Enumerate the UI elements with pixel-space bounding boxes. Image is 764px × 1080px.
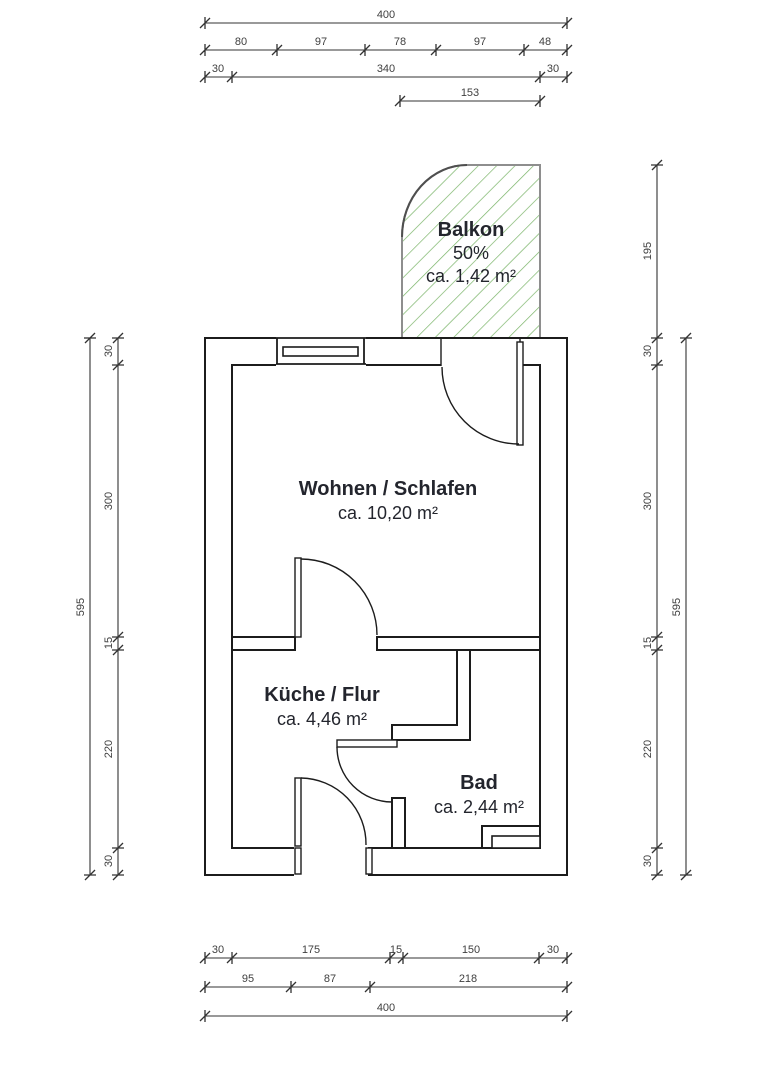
balkon-area: ca. 1,42 m² [426, 266, 516, 286]
dim-label: 97 [474, 36, 486, 48]
dim-label: 15 [390, 944, 402, 956]
dim-label: 340 [377, 63, 395, 75]
dim-label: 30 [212, 944, 224, 956]
floor-plan-drawing: 400 80 97 78 97 48 30 340 30 153 30 175 … [0, 0, 764, 1080]
dim-label: 30 [642, 855, 654, 867]
entrance-door-leaf [295, 778, 301, 846]
entrance-door-jamb-left [295, 848, 301, 874]
dim-label: 30 [103, 855, 115, 867]
dimensions-bottom: 30 175 15 150 30 95 87 218 400 [200, 944, 572, 1022]
wohnen-door-swing-arc [301, 559, 377, 635]
dim-label: 30 [547, 944, 559, 956]
dim-label: 153 [461, 87, 479, 99]
dim-label: 48 [539, 36, 551, 48]
dim-label: 87 [324, 973, 336, 985]
dim-label: 150 [462, 944, 480, 956]
balcony-door-swing-arc [442, 367, 519, 444]
dim-label: 300 [103, 492, 115, 510]
bad-shaft-box [492, 836, 540, 848]
balkon-label: Balkon [438, 219, 505, 241]
dim-label: 220 [642, 740, 654, 758]
kueche-flur-label: Küche / Flur [264, 684, 380, 706]
dim-label: 78 [394, 36, 406, 48]
dim-label: 30 [212, 63, 224, 75]
wohnen-schlafen-area: ca. 10,20 m² [338, 503, 438, 523]
balcony-door-opening [441, 340, 520, 367]
bad-door [337, 740, 397, 802]
dim-label: 80 [235, 36, 247, 48]
dim-label: 30 [547, 63, 559, 75]
dim-label: 175 [302, 944, 320, 956]
dimensions-left: 595 30 300 15 220 30 [75, 333, 124, 880]
dim-label: 30 [642, 345, 654, 357]
balcony-door-leaf [517, 342, 523, 445]
bad-partition-lower [392, 798, 405, 848]
dim-label: 95 [242, 973, 254, 985]
dim-label: 400 [377, 1002, 395, 1014]
interior-wall-left [232, 637, 295, 650]
dim-label: 15 [103, 637, 115, 649]
entrance-door-jamb-right [366, 848, 372, 874]
dim-label: 218 [459, 973, 477, 985]
entrance-door-opening [294, 846, 368, 878]
balkon-share: 50% [453, 243, 489, 263]
window-glazing [283, 347, 358, 356]
dimensions-right: 195 30 300 15 220 30 595 [642, 160, 692, 880]
dim-label: 220 [103, 740, 115, 758]
bad-door-leaf [337, 740, 397, 747]
dim-label: 15 [642, 637, 654, 649]
dim-label: 595 [75, 598, 87, 616]
bad-shaft [482, 826, 540, 848]
dimensions-top: 400 80 97 78 97 48 30 340 30 153 [200, 9, 572, 107]
kueche-flur-area: ca. 4,46 m² [277, 709, 367, 729]
wohnen-schlafen-label: Wohnen / Schlafen [299, 478, 478, 500]
dim-label: 595 [671, 598, 683, 616]
outer-wall-face [205, 338, 567, 875]
bad-area: ca. 2,44 m² [434, 797, 524, 817]
bad-door-swing-arc [337, 747, 392, 802]
wohnen-door [295, 558, 377, 637]
dim-label: 400 [377, 9, 395, 21]
dim-label: 195 [642, 242, 654, 260]
floor-plan-page: 400 80 97 78 97 48 30 340 30 153 30 175 … [0, 0, 764, 1080]
dim-label: 30 [103, 345, 115, 357]
interior-wall-right [377, 637, 540, 650]
wohnen-door-leaf [295, 558, 301, 637]
bad-label: Bad [460, 772, 498, 794]
dim-label: 97 [315, 36, 327, 48]
dim-label: 300 [642, 492, 654, 510]
bad-partition-upper [392, 650, 470, 740]
